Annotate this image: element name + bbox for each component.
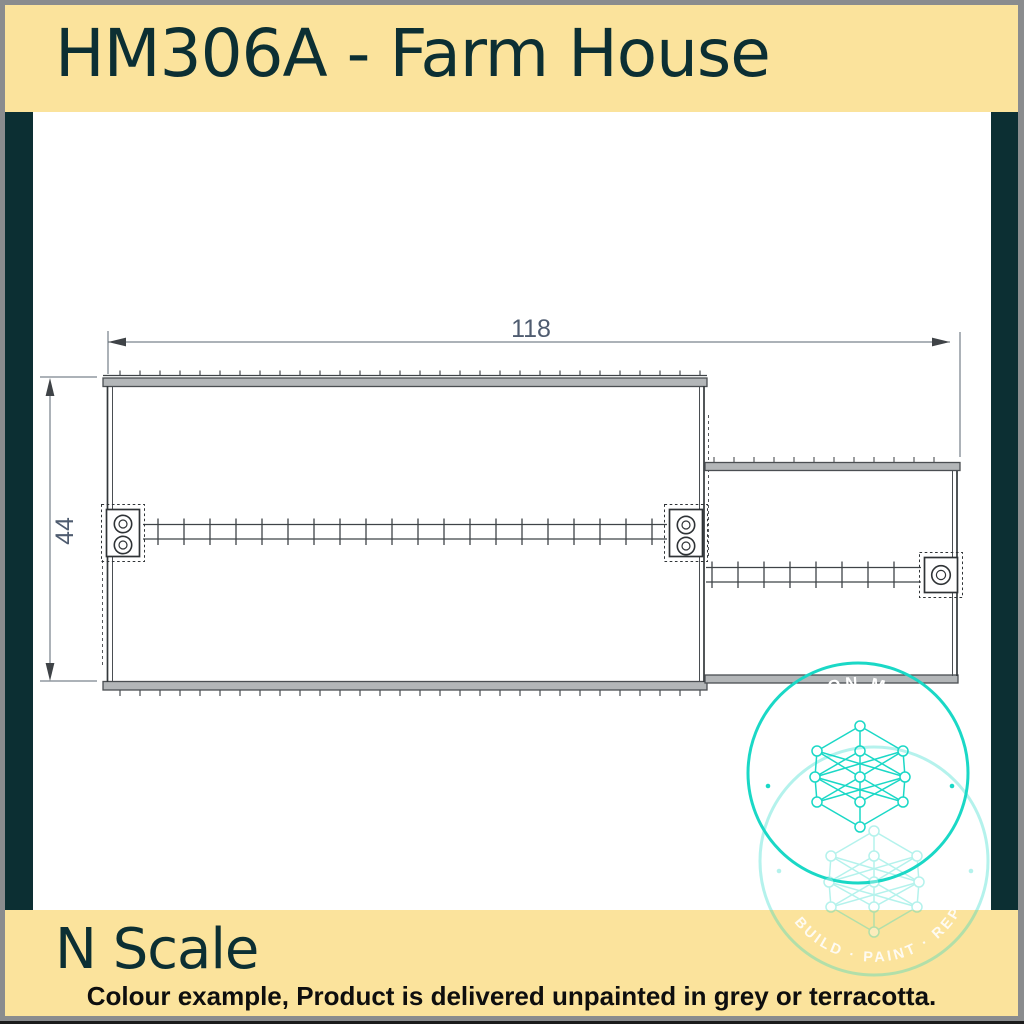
- technical-drawing: 118 44: [0, 0, 1024, 1024]
- width-dimension: 118: [108, 315, 960, 457]
- extension-top-eave: [705, 463, 960, 471]
- height-dimension-value: 44: [51, 517, 79, 545]
- extension-building: [705, 457, 963, 683]
- watermark-arc-text-top-path: ON M: [826, 673, 891, 697]
- caption-text: Colour example, Product is delivered unp…: [5, 983, 1018, 1009]
- extension-tile-ticks: [714, 457, 934, 463]
- chimney-right: [665, 505, 708, 562]
- top-eave-band: [103, 378, 707, 387]
- watermark-network-bright: [810, 721, 910, 832]
- main-building: [102, 371, 709, 697]
- product-title: HM306A - Farm House: [55, 21, 770, 87]
- arrowhead-right: [932, 338, 950, 347]
- arrowhead-bottom: [46, 663, 55, 681]
- roof-tile-ticks-bottom: [120, 691, 700, 697]
- frame-border-right: [1018, 0, 1024, 1024]
- scale-label: N Scale: [55, 922, 258, 978]
- watermark-circle-bright: [748, 663, 968, 883]
- watermark-arc-text-top: ON M: [826, 673, 891, 697]
- frame-border-top: [0, 0, 1024, 5]
- height-dimension: 44: [40, 377, 97, 681]
- left-accent-bar: [5, 112, 33, 910]
- ridge-tile-ticks: [158, 519, 652, 546]
- arrowhead-left: [108, 338, 126, 347]
- frame-border-left: [0, 0, 5, 1024]
- chimney-extension: [920, 553, 963, 598]
- width-dimension-value: 118: [511, 315, 551, 343]
- watermark-dot: [950, 784, 955, 789]
- product-image-page: HM306A - Farm House N Scale Colour examp…: [0, 0, 1024, 1024]
- roof-tile-ticks-top: [120, 371, 700, 377]
- arrowhead-top: [46, 378, 55, 396]
- watermark-dot: [766, 784, 771, 789]
- extension-bottom-eave: [705, 675, 958, 683]
- extension-ridge-ticks: [712, 562, 894, 589]
- bottom-eave-band: [103, 682, 707, 691]
- right-accent-bar: [991, 112, 1018, 910]
- chimney-left: [102, 505, 145, 562]
